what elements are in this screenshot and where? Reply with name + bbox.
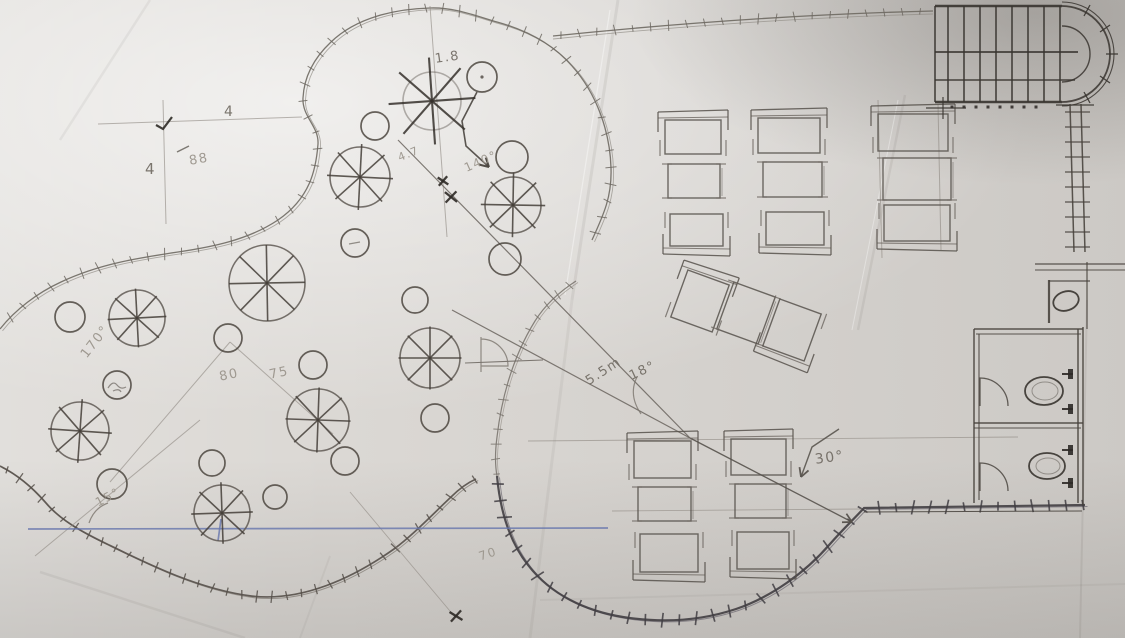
arrows [462,92,852,522]
table [730,530,796,579]
table [757,162,828,197]
shrub-circle [214,324,242,352]
table [662,164,726,198]
toilet-fixture [1025,369,1073,414]
shrub-circle [331,447,359,475]
sink-fixture [1051,288,1082,314]
x-mark [450,610,463,621]
table [658,110,728,156]
staircase [926,2,1118,119]
tree-symbol [389,58,476,145]
shrub-circle [467,62,497,92]
shrub-circle [299,351,327,379]
tree-symbol [481,173,545,237]
table [627,431,698,480]
construction-lines [28,6,1018,617]
shrub-circle [496,141,528,173]
door-swing [980,463,1008,491]
table [877,203,957,251]
shrub-circle [199,450,225,476]
door-swing [980,378,1008,406]
shrub-circle [263,485,287,509]
table [751,108,827,155]
table [711,280,781,346]
tree-symbol [229,245,305,321]
table [729,484,792,518]
tree-symbol [327,144,393,210]
tree-symbol [48,399,112,463]
paper-creases [40,0,1125,638]
x-marks [156,117,462,622]
shrub-circle [361,112,389,140]
tree-symbol [399,327,462,390]
annotation-4-top: 4 [224,104,234,120]
shrub-circles [55,62,528,509]
table [632,487,697,521]
site-plan-sketch-photo: 1.8 4 4 88 4.7 140° 170° 80 75 15° 5.5m … [0,0,1125,638]
shrub-circle [103,371,131,399]
annotation-4-left: 4 [145,160,156,178]
table [633,532,705,582]
tree-symbols [48,58,545,544]
table [759,210,831,255]
toilet-fixture [1029,445,1073,488]
shrub-circle [55,302,85,332]
tree-symbol [191,482,253,544]
shrub-circle [489,243,521,275]
sketch-drawing [0,0,1125,638]
shrub-circle [421,404,449,432]
table [663,212,730,256]
shrub-circle [402,287,428,313]
table [724,429,793,477]
tree-symbol [108,289,167,348]
x-mark [445,191,457,202]
shrub-circle [341,229,369,257]
angle-arcs [89,337,641,523]
tree-symbol [285,387,350,452]
